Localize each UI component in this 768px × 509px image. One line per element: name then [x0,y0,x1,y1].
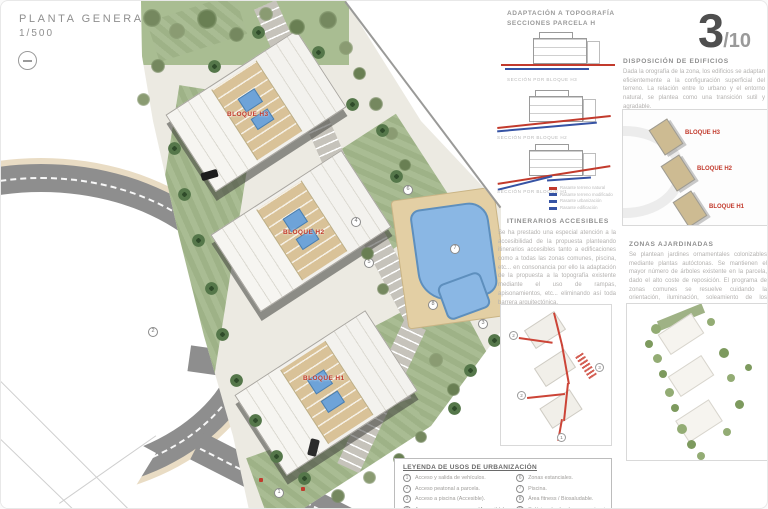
garden-tree-icon [659,370,667,378]
building-label-h1: BLOQUE H1 [303,375,345,382]
plan-marker: 8 [428,300,438,310]
tree-icon [399,159,411,171]
section-drawing-h1 [495,141,613,187]
tree-icon [229,27,244,42]
tree-icon [151,59,165,73]
palm-tree-icon [248,413,263,428]
tree-icon [319,11,337,29]
tree-icon [369,97,383,111]
palm-tree-icon [345,97,360,112]
access-marker [259,478,263,482]
palm-tree-icon [269,449,284,464]
tree-icon [331,489,345,503]
presentation-board: PLANTA GENERAL DE PARCELA H 1/500 [0,0,768,509]
palm-tree-icon [204,281,219,296]
tree-icon [339,41,353,55]
plan-marker: 4 [351,217,361,227]
itinerarios-heading: ITINERARIOS ACCESIBLES [507,218,609,225]
plan-marker: 2 [148,327,158,337]
section-caption: SECCIÓN POR BLOQUE H2 [497,135,567,140]
disposicion-heading: DISPOSICIÓN DE EDIFICIOS [623,58,729,65]
mini-label-h3: BLOQUE H3 [685,130,720,136]
mini-building-h1 [673,190,708,226]
palm-tree-icon [463,363,478,378]
legend-title: LEYENDA DE USOS DE URBANIZACIÓN [403,464,603,471]
palm-tree-icon [251,25,266,40]
legend-left-column: 1Acceso y salida de vehículos. 2Acceso p… [403,474,506,509]
section-caption: SECCIÓN POR BLOQUE H3 [507,77,577,82]
building-label-h2: BLOQUE H2 [283,229,325,236]
palm-tree-icon [297,471,312,486]
tree-icon [353,67,366,80]
garden-tree-icon [723,428,731,436]
garden-tree-icon [697,452,705,460]
garden-tree-icon [687,440,696,449]
section-drawing-h2 [495,87,613,133]
palm-tree-icon [229,373,244,388]
tree-icon [361,247,374,260]
tree-icon [169,23,185,39]
garden-tree-icon [671,404,679,412]
page-number: 3/10 [698,3,751,58]
tree-icon [143,9,161,27]
palm-tree-icon [177,187,192,202]
mini-label-h1: BLOQUE H1 [709,204,744,210]
legend-right-column: 6Zonas estanciales. 7Piscina. 8Área fitn… [516,474,609,509]
legend-box: LEYENDA DE USOS DE URBANIZACIÓN 1Acceso … [394,458,612,509]
garden-tree-icon [727,374,735,382]
disposicion-body: Dada la orografía de la zona, los edific… [623,68,765,111]
palm-tree-icon [389,169,404,184]
disposicion-diagram: BLOQUE H3 BLOQUE H2 BLOQUE H1 [622,109,768,226]
itinerarios-diagram: 2 3 2 1 [500,304,612,446]
sections-legend: Rasante terreno natural Rasante terreno … [549,185,613,212]
sections-heading: ADAPTACIÓN A TOPOGRAFÍA SECCIONES PARCEL… [507,9,615,29]
page-number-total: /10 [723,30,751,52]
tree-icon [377,283,389,295]
garden-tree-icon [745,364,752,371]
garden-tree-icon [735,400,744,409]
garden-tree-icon [665,388,674,397]
plan-marker: 1 [274,488,284,498]
plan-marker: 3 [478,319,488,329]
garden-tree-icon [653,354,662,363]
palm-tree-icon [375,123,390,138]
tree-icon [447,383,460,396]
tree-icon [415,431,427,443]
garden-tree-icon [707,318,715,326]
site-plan: PLANTA GENERAL DE PARCELA H 1/500 [1,1,506,509]
zonas-diagram [626,303,768,461]
itinerarios-body: Se ha prestado una especial atención a l… [498,229,616,307]
ramp-hatch [574,351,597,379]
palm-tree-icon [447,401,462,416]
palm-tree-icon [207,59,222,74]
palm-tree-icon [167,141,182,156]
palm-tree-icon [191,233,206,248]
tree-icon [363,471,376,484]
section-drawing-h3 [499,29,617,75]
tree-icon [137,93,150,106]
plan-scale: 1/500 [19,28,54,39]
tree-icon [429,353,443,367]
garden-tree-icon [651,324,661,334]
garden-tree-icon [645,340,653,348]
tree-icon [197,9,217,29]
page-number-current: 3 [698,4,723,57]
plan-marker: 7 [450,244,460,254]
north-indicator-icon [18,51,37,70]
palm-tree-icon [311,45,326,60]
palm-tree-icon [215,327,230,342]
mini-label-h2: BLOQUE H2 [697,166,732,172]
tree-icon [259,7,273,21]
plan-marker: 6 [403,185,413,195]
zonas-heading: ZONAS AJARDINADAS [629,241,714,248]
garden-tree-icon [677,424,687,434]
building-label-h3: BLOQUE H3 [227,111,269,118]
garden-tree-icon [719,348,729,358]
access-marker [301,487,305,491]
tree-icon [289,19,305,35]
